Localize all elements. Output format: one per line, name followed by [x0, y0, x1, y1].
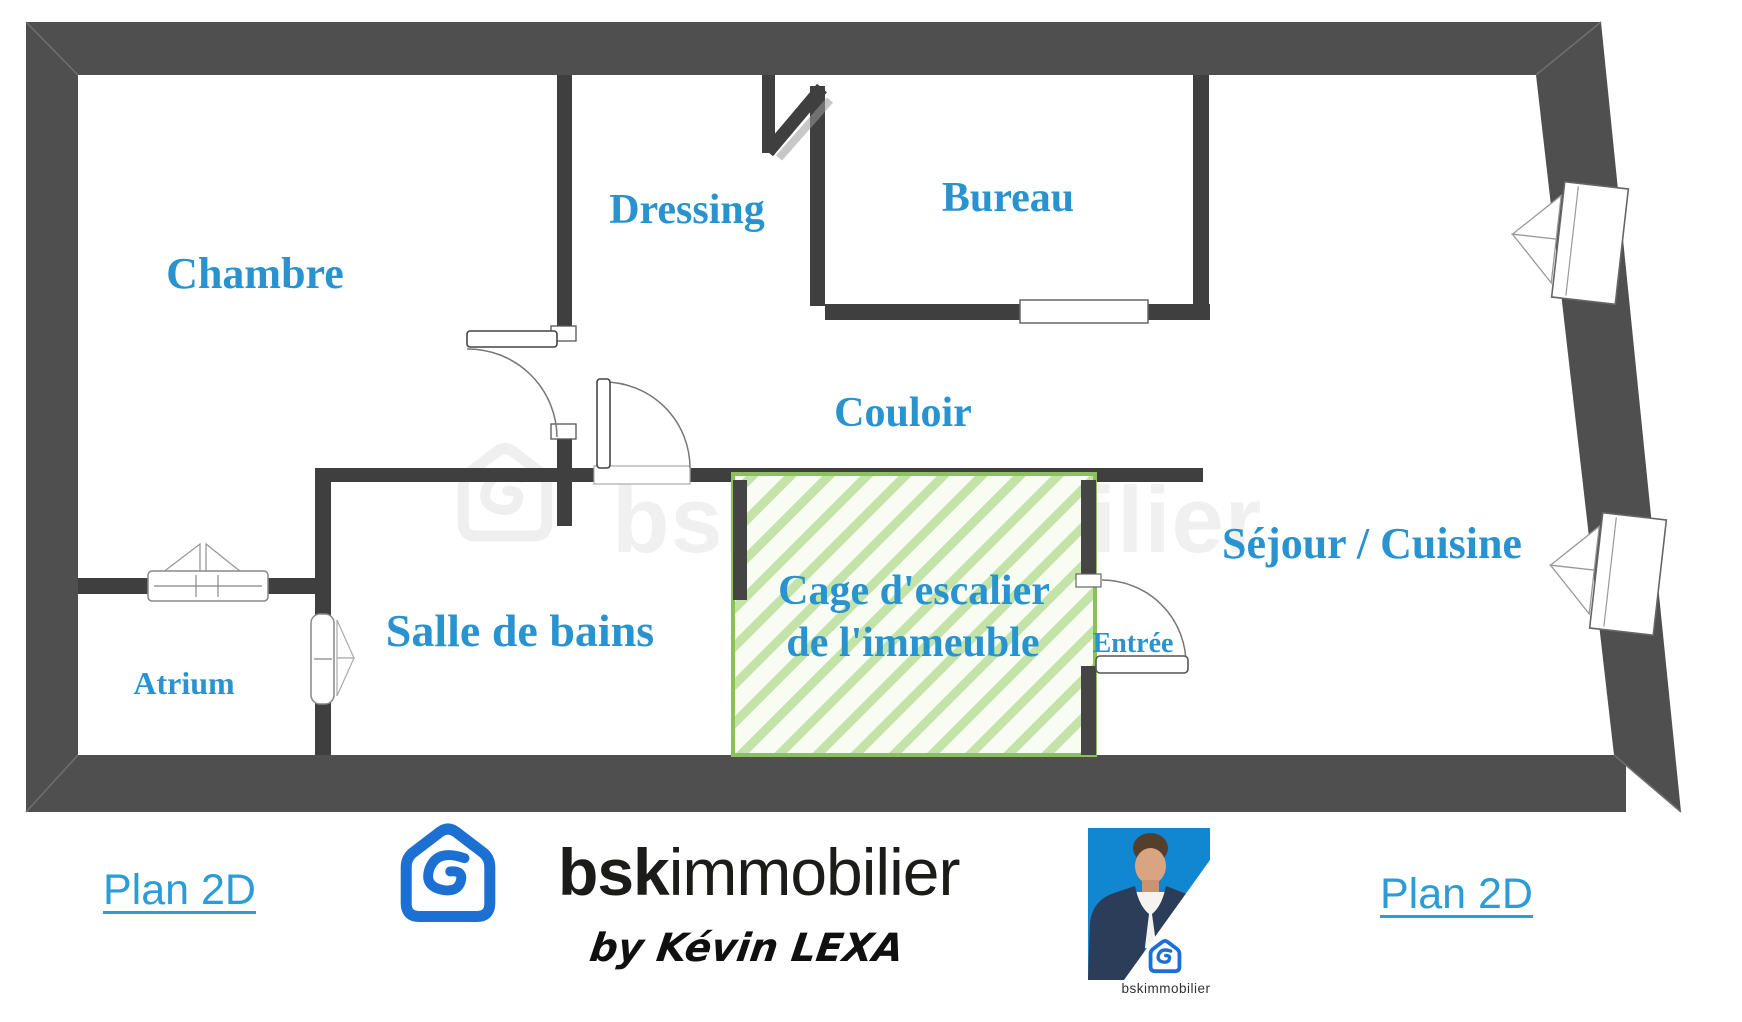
brand-logo: [406, 829, 490, 916]
room-label-couloir: Couloir: [834, 390, 972, 436]
room-label-dressing: Dressing: [609, 187, 765, 233]
wall-couloir-a: [315, 468, 596, 482]
window-right-upper: [1506, 177, 1628, 305]
agent-neck: [1142, 880, 1159, 894]
agent-face: [1135, 848, 1166, 884]
agent-badge-label: bskimmobilier: [1100, 981, 1232, 996]
wall-chambre-dressing: [557, 75, 572, 328]
door-chambre: [467, 326, 576, 439]
bureau-wall-opening: [1020, 300, 1148, 323]
room-label-chambre: Chambre: [166, 249, 344, 298]
wall-left: [26, 22, 78, 812]
wall-bureau-right: [1193, 75, 1209, 304]
brand-wordmark-bold: bsk: [558, 835, 669, 909]
wall-chambre-dressing-low: [557, 439, 572, 468]
wall-bureau-bottom-a: [825, 304, 1020, 320]
door-salle-de-bains: [594, 379, 690, 484]
wall-bottom: [26, 755, 1626, 812]
stairwell-cage: [733, 474, 1101, 755]
plan-2d-link-right[interactable]: Plan 2D: [1380, 870, 1533, 919]
wall-stub-bathroom: [557, 482, 572, 526]
wall-atrium-right-a: [315, 468, 331, 616]
room-label-atrium: Atrium: [133, 665, 235, 701]
brand-wordmark: bskimmobilier: [558, 834, 959, 910]
window-right-lower: [1544, 508, 1666, 636]
room-label-cage-line1: Cage d'escalier: [778, 568, 1050, 614]
wall-atrium-right-b: [315, 702, 331, 755]
floor-plan-page: bskimmobilier: [0, 0, 1742, 1022]
room-label-salle-de-bains: Salle de bains: [386, 605, 654, 656]
plan-2d-link-left[interactable]: Plan 2D: [103, 866, 256, 915]
room-label-cage-line2: de l'immeuble: [786, 620, 1039, 666]
door-entree: [1096, 580, 1188, 673]
wall-right-slanted: [1536, 22, 1681, 812]
room-label-sejour-cuisine: Séjour / Cuisine: [1222, 519, 1522, 568]
brand-byline: by Kévin LEXA: [587, 926, 907, 971]
room-label-bureau: Bureau: [942, 175, 1074, 221]
window-atrium-right: [311, 614, 354, 704]
brand-wordmark-light: immobilier: [669, 835, 960, 909]
window-atrium-top: [148, 544, 268, 601]
bsk-house-icon: [406, 829, 490, 916]
wall-bureau-bottom-b: [1148, 304, 1210, 320]
agent-photo-card: [1088, 828, 1210, 980]
wall-top: [26, 22, 1601, 75]
room-label-entree: Entrée: [1093, 628, 1174, 659]
